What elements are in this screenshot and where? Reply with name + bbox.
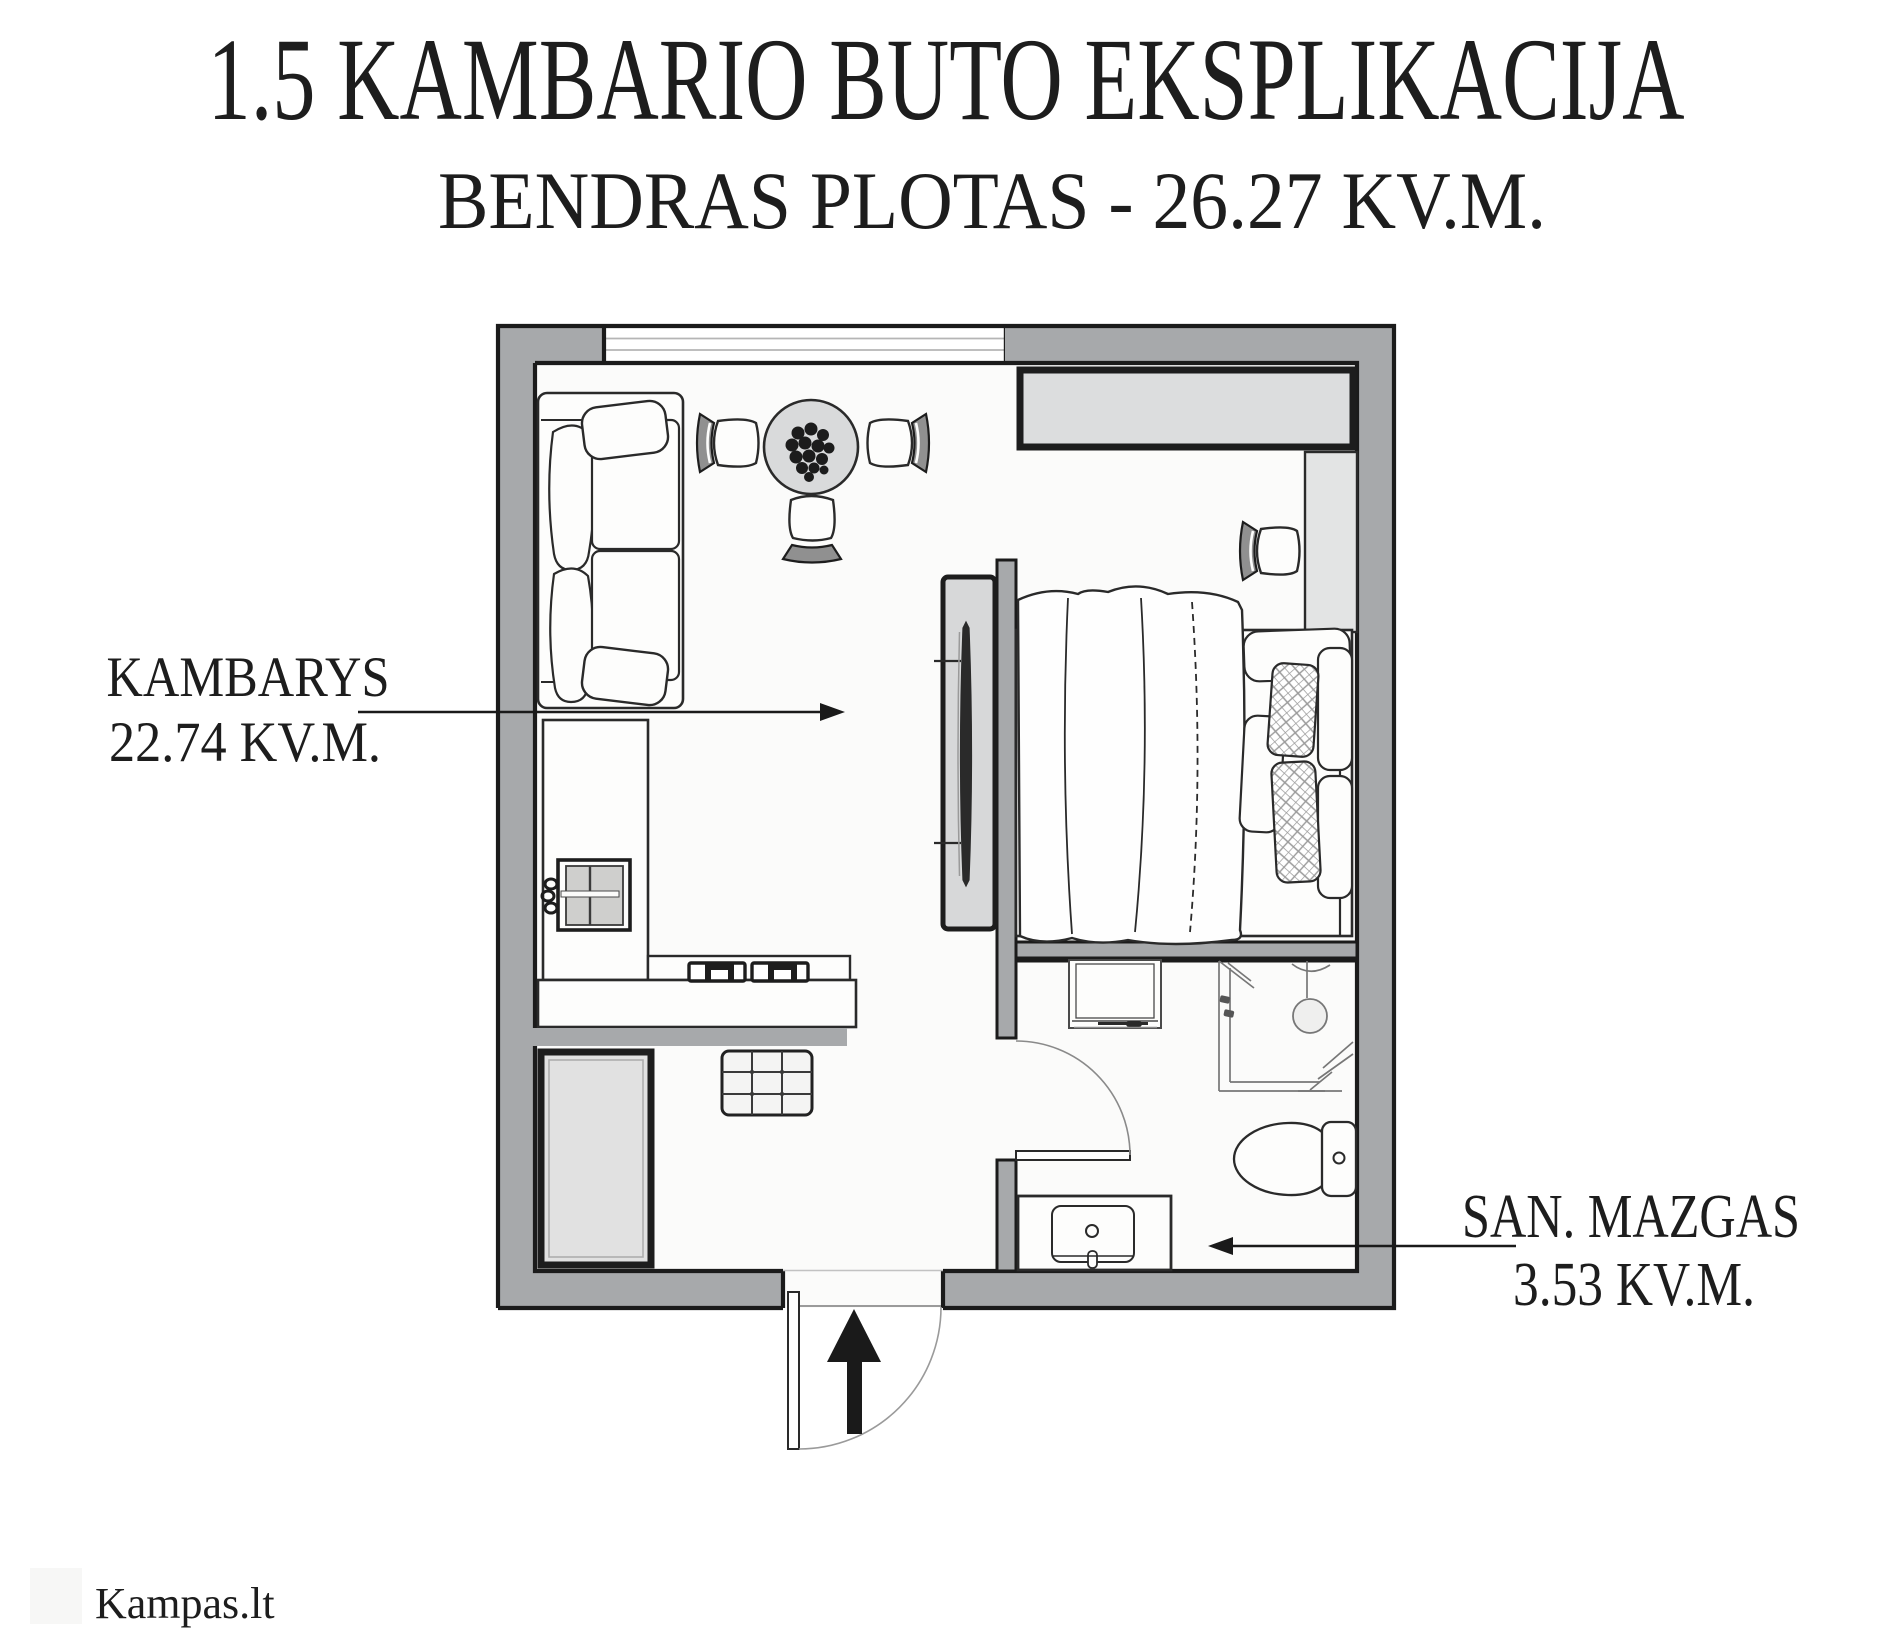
svg-text:SAN. MAZGAS: SAN. MAZGAS — [1462, 1183, 1800, 1251]
svg-text:Kampas.lt: Kampas.lt — [95, 1579, 275, 1628]
svg-text:BENDRAS PLOTAS - 26.27 KV.M.: BENDRAS PLOTAS - 26.27 KV.M. — [438, 155, 1546, 246]
svg-text:3.53 KV.M.: 3.53 KV.M. — [1513, 1251, 1755, 1319]
svg-text:KAMBARYS: KAMBARYS — [107, 646, 390, 709]
svg-text:1.5 KAMBARIO BUTO EKSPLIKACIJA: 1.5 KAMBARIO BUTO EKSPLIKACIJA — [208, 14, 1685, 145]
svg-text:22.74 KV.M.: 22.74 KV.M. — [109, 711, 381, 774]
